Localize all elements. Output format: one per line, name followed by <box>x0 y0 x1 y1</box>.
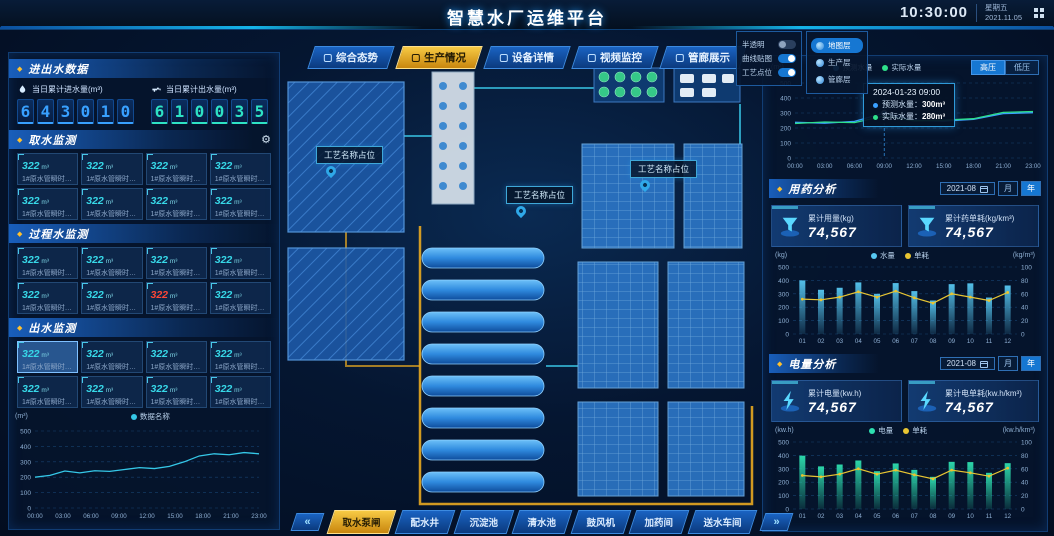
svg-text:0: 0 <box>787 156 791 163</box>
svg-text:12: 12 <box>1004 513 1011 520</box>
sedimentation-tanks <box>422 248 544 492</box>
svg-text:02: 02 <box>818 513 825 520</box>
filter-tanks <box>578 144 744 496</box>
diamond-icon: ◆ <box>17 230 23 238</box>
layer-toggle-row: 半透明 <box>742 39 796 50</box>
svg-text:80: 80 <box>1021 278 1029 285</box>
monitor-card[interactable]: 322 m³1#原水管瞬时… <box>210 188 271 220</box>
process-marker[interactable]: 工艺名称占位 <box>506 186 573 216</box>
daily-water-stats: 当日累计进水量(m³) 643010 当日累计出水量(m³) 610035 <box>9 78 279 128</box>
process-tab-2[interactable]: 配水井 <box>395 510 455 534</box>
pin-icon <box>324 164 338 178</box>
monitor-card[interactable]: 322 m³1#原水管瞬时… <box>146 188 207 220</box>
svg-text:05: 05 <box>874 338 881 345</box>
left-chart-unit: (m³) <box>15 413 28 420</box>
chart-tooltip: 2024-01-23 09:00 预测水量： 300m³ 实际水量： 280m³ <box>863 83 955 127</box>
left-panel-title: 进出水数据 <box>28 61 88 77</box>
svg-text:15:00: 15:00 <box>936 163 952 170</box>
layer-item[interactable]: 地图层 <box>811 38 863 53</box>
svg-text:0: 0 <box>27 506 31 513</box>
pressure-low-button[interactable]: 低压 <box>1005 60 1039 75</box>
chemical-analysis-section: ◆ 用药分析 2021-08 月 年 <box>769 179 1041 351</box>
pressure-high-button[interactable]: 高压 <box>971 60 1005 75</box>
chemical-title: 用药分析 <box>788 181 836 197</box>
counter-digit: 1 <box>171 99 188 124</box>
faucet-icon <box>151 84 162 95</box>
svg-text:07: 07 <box>911 338 918 345</box>
svg-text:08: 08 <box>930 338 937 345</box>
process-tab-5[interactable]: 鼓风机 <box>570 510 630 534</box>
svg-text:09: 09 <box>948 513 955 520</box>
svg-text:11: 11 <box>986 338 993 345</box>
chemical-legend: 水量单耗 <box>787 250 1013 261</box>
svg-text:400: 400 <box>778 453 789 460</box>
toggle-switch[interactable] <box>778 68 796 77</box>
dashboard-root: 智慧水厂运维平台 10:30:00 星期五 2021.11.05 综合态势生产情… <box>0 0 1054 536</box>
forecast-dot-icon <box>873 103 878 108</box>
right-panel: (m³) 预测水量实际水量 高压 低压 2024-01-23 09:00 预测水… <box>762 55 1048 532</box>
chemical-unit-value: 74,567 <box>945 224 1014 240</box>
svg-text:06:00: 06:00 <box>847 163 863 170</box>
svg-text:0: 0 <box>785 332 789 339</box>
counter-digit: 0 <box>191 99 208 124</box>
calendar-icon <box>980 185 988 193</box>
monitor-card[interactable]: 322 m³1#原水管瞬时… <box>210 341 271 373</box>
svg-text:09:00: 09:00 <box>111 513 127 520</box>
monitor-card[interactable]: 322 m³1#原水管瞬时… <box>81 376 142 408</box>
svg-text:09: 09 <box>948 338 955 345</box>
monitor-card[interactable]: 322 m³1#原水管瞬时… <box>17 341 78 373</box>
power-year-button[interactable]: 年 <box>1021 356 1041 371</box>
power-unit-card: 累计电单耗(kw.h/km³) 74,567 <box>908 380 1039 422</box>
funnel-water-icon <box>915 215 939 237</box>
process-tab-1[interactable]: 取水泵闸 <box>327 510 397 534</box>
power-bar-chart: 0100200300400500020406080100010203040506… <box>769 437 1041 526</box>
next-arrow-button[interactable]: » <box>759 513 793 531</box>
svg-text:21:00: 21:00 <box>996 163 1012 170</box>
date-block: 星期五 2021.11.05 <box>985 3 1022 23</box>
weekday-text: 星期五 <box>985 3 1022 13</box>
monitor-card[interactable]: 322 m³1#原水管瞬时… <box>210 376 271 408</box>
inflow-label: 当日累计进水量(m³) <box>32 84 103 95</box>
monitor-card[interactable]: 322 m³1#原水管瞬时… <box>146 282 207 314</box>
svg-text:100: 100 <box>780 141 791 148</box>
output-card-grid: 322 m³1#原水管瞬时…322 m³1#原水管瞬时…322 m³1#原水管瞬… <box>9 337 279 410</box>
outflow-stat: 当日累计出水量(m³) 610035 <box>151 84 271 124</box>
monitor-card[interactable]: 322 m³1#原水管瞬时… <box>81 247 142 279</box>
left-chart-legend: 数据名称 <box>28 411 273 422</box>
svg-text:04: 04 <box>855 338 862 345</box>
diamond-icon: ◆ <box>777 185 783 193</box>
map-layer-panel: 地图层生产层管廊层 <box>806 31 868 94</box>
power-unit-value: 74,567 <box>945 399 1022 415</box>
intake-card-grid: 322 m³1#原水管瞬时…322 m³1#原水管瞬时…322 m³1#原水管瞬… <box>9 149 279 222</box>
layer-globe-icon <box>816 76 824 84</box>
raw-water-tank-2 <box>288 248 404 360</box>
svg-text:300: 300 <box>20 459 31 466</box>
svg-text:00:00: 00:00 <box>27 513 43 520</box>
pin-icon <box>638 178 652 192</box>
nav-tab-icon <box>412 54 420 62</box>
svg-text:00:00: 00:00 <box>787 163 803 170</box>
svg-text:200: 200 <box>778 305 789 312</box>
power-total-card: 累计电量(kw.h) 74,567 <box>771 380 902 422</box>
svg-text:23:00: 23:00 <box>1025 163 1041 170</box>
nav-tab-label: 综合态势 <box>336 50 378 65</box>
svg-text:100: 100 <box>20 490 31 497</box>
counter-digit: 6 <box>17 99 34 124</box>
monitor-card[interactable]: 322 m³1#原水管瞬时… <box>81 341 142 373</box>
svg-text:500: 500 <box>20 429 31 436</box>
left-panel-title-banner: ◆ 进出水数据 <box>9 59 279 78</box>
nav-tab-3[interactable]: 设备详情 <box>483 46 570 69</box>
section-title-intake: 取水监测 <box>28 132 76 148</box>
legend-item: 水量 <box>871 250 895 261</box>
counter-digit: 0 <box>117 99 134 124</box>
diamond-icon: ◆ <box>777 360 783 368</box>
svg-text:18:00: 18:00 <box>966 163 982 170</box>
page-title: 智慧水厂运维平台 <box>447 4 607 29</box>
process-tab-3[interactable]: 沉淀池 <box>453 510 513 534</box>
process-tab-6[interactable]: 加药间 <box>629 510 689 534</box>
main-nav: 综合态势生产情况设备详情视频监控管廊展示 <box>307 46 747 69</box>
svg-text:500: 500 <box>778 440 789 447</box>
svg-text:03:00: 03:00 <box>817 163 833 170</box>
svg-text:15:00: 15:00 <box>167 513 183 520</box>
nav-tab-label: 设备详情 <box>512 50 554 65</box>
svg-text:09:00: 09:00 <box>877 163 893 170</box>
counter-digit: 3 <box>231 99 248 124</box>
svg-text:12: 12 <box>1004 338 1011 345</box>
diamond-icon: ◆ <box>17 65 23 73</box>
monitor-card[interactable]: 322 m³1#原水管瞬时… <box>81 282 142 314</box>
section-title-output: 出水监测 <box>28 320 76 336</box>
nav-tab-icon <box>324 54 332 62</box>
svg-text:02: 02 <box>818 338 825 345</box>
counter-digit: 0 <box>211 99 228 124</box>
svg-text:10: 10 <box>967 513 974 520</box>
monitor-card[interactable]: 322 m³1#原水管瞬时… <box>210 282 271 314</box>
svg-text:60: 60 <box>1021 291 1029 298</box>
divider <box>976 4 977 22</box>
svg-text:300: 300 <box>780 111 791 118</box>
section-title-process: 过程水监测 <box>28 226 88 242</box>
legend-item: 单耗 <box>905 250 929 261</box>
map-toggle-panel: 半透明曲线贴图工艺点位 <box>736 31 802 86</box>
chemical-total-card: 累计用量(kg) 74,567 <box>771 205 902 247</box>
svg-text:100: 100 <box>778 493 789 500</box>
nav-tab-2[interactable]: 生产情况 <box>395 46 482 69</box>
svg-text:60: 60 <box>1021 466 1029 473</box>
svg-text:400: 400 <box>778 278 789 285</box>
svg-text:100: 100 <box>778 318 789 325</box>
plant-map[interactable]: 工艺名称占位工艺名称占位工艺名称占位 <box>282 66 765 514</box>
toggle-label: 曲线贴图 <box>742 53 772 64</box>
layer-item[interactable]: 管廊层 <box>811 72 863 87</box>
monitor-card[interactable]: 322 m³1#原水管瞬时… <box>146 341 207 373</box>
svg-text:11: 11 <box>986 513 993 520</box>
toggle-label: 工艺点位 <box>742 67 772 78</box>
monitor-card[interactable]: 322 m³1#原水管瞬时… <box>17 376 78 408</box>
diamond-icon: ◆ <box>17 324 23 332</box>
svg-text:100: 100 <box>1021 440 1032 447</box>
nav-tab-4[interactable]: 视频监控 <box>571 46 658 69</box>
time-text: 10:30:00 <box>900 4 968 21</box>
nav-tab-5[interactable]: 管廊展示 <box>659 46 746 69</box>
monitor-card[interactable]: 322 m³1#原水管瞬时… <box>146 247 207 279</box>
svg-text:500: 500 <box>778 265 789 272</box>
svg-text:01: 01 <box>799 338 806 345</box>
monitor-card[interactable]: 322 m³1#原水管瞬时… <box>17 153 78 185</box>
power-title: 电量分析 <box>788 356 836 372</box>
process-marker[interactable]: 工艺名称占位 <box>630 160 697 190</box>
nav-tab-icon <box>676 54 684 62</box>
section-banner-process: ◆ 过程水监测 <box>9 224 279 243</box>
toggle-switch[interactable] <box>778 54 796 63</box>
monitor-card[interactable]: 322 m³1#原水管瞬时… <box>17 188 78 220</box>
svg-text:0: 0 <box>1021 507 1025 514</box>
svg-text:20: 20 <box>1021 493 1029 500</box>
counter-digit: 6 <box>151 99 168 124</box>
clock-block: 10:30:00 星期五 2021.11.05 <box>900 3 1044 23</box>
svg-text:01: 01 <box>799 513 806 520</box>
process-tab-list: 取水泵闸配水井沉淀池清水池鼓风机加药间送水车间 <box>328 510 757 534</box>
inflow-counter: 643010 <box>17 99 137 124</box>
tooltip-title: 2024-01-23 09:00 <box>873 87 945 97</box>
pump-house <box>432 72 474 204</box>
svg-text:03: 03 <box>836 513 843 520</box>
svg-text:10: 10 <box>967 338 974 345</box>
chemical-bar-chart: 0100200300400500020406080100010203040506… <box>769 262 1041 351</box>
monitor-card[interactable]: 322 m³1#原水管瞬时… <box>17 282 78 314</box>
svg-text:12:00: 12:00 <box>139 513 155 520</box>
nav-tab-label: 管廊展示 <box>688 50 730 65</box>
monitor-card[interactable]: 322 m³1#原水管瞬时… <box>146 376 207 408</box>
lightning-icon <box>778 390 802 412</box>
svg-text:23:00: 23:00 <box>251 513 267 520</box>
power-date-picker[interactable]: 2021-08 <box>940 357 995 370</box>
svg-text:80: 80 <box>1021 453 1029 460</box>
settings-gear-icon[interactable]: ⚙ <box>261 133 271 146</box>
layer-globe-icon <box>816 42 824 50</box>
svg-text:03:00: 03:00 <box>55 513 71 520</box>
counter-digit: 1 <box>97 99 114 124</box>
section-banner-intake: ◆ 取水监测 <box>9 130 253 149</box>
inflow-stat: 当日累计进水量(m³) 643010 <box>17 84 137 124</box>
svg-text:200: 200 <box>20 475 31 482</box>
power-legend: 电量单耗 <box>794 425 1003 436</box>
layer-item[interactable]: 生产层 <box>811 55 863 70</box>
monitor-card[interactable]: 322 m³1#原水管瞬时… <box>81 153 142 185</box>
svg-text:06: 06 <box>892 338 899 345</box>
svg-text:05: 05 <box>874 513 881 520</box>
svg-text:0: 0 <box>1021 332 1025 339</box>
svg-text:40: 40 <box>1021 305 1029 312</box>
nav-tab-icon <box>500 54 508 62</box>
svg-text:12:00: 12:00 <box>906 163 922 170</box>
svg-text:03: 03 <box>836 338 843 345</box>
bottom-tab-bar: « 取水泵闸配水井沉淀池清水池鼓风机加药间送水车间 » <box>293 510 790 534</box>
actual-dot-icon <box>873 115 878 120</box>
nav-tab-label: 视频监控 <box>600 50 642 65</box>
section-banner-output: ◆ 出水监测 <box>9 318 279 337</box>
nav-tab-1[interactable]: 综合态势 <box>307 46 394 69</box>
svg-text:08: 08 <box>930 513 937 520</box>
prev-arrow-button[interactable]: « <box>291 513 325 531</box>
toggle-label: 半透明 <box>742 39 765 50</box>
process-marker[interactable]: 工艺名称占位 <box>316 146 383 176</box>
layer-toggle-row: 工艺点位 <box>742 67 796 78</box>
chemical-total-value: 74,567 <box>808 224 857 240</box>
water-meter-icon <box>17 84 28 95</box>
svg-text:07: 07 <box>911 513 918 520</box>
svg-text:04: 04 <box>855 513 862 520</box>
monitor-card[interactable]: 322 m³1#原水管瞬时… <box>210 247 271 279</box>
power-analysis-section: ◆ 电量分析 2021-08 月 年 <box>769 354 1041 526</box>
chemical-unit-card: 累计药单耗(kg/km³) 74,567 <box>908 205 1039 247</box>
process-card-grid: 322 m³1#原水管瞬时…322 m³1#原水管瞬时…322 m³1#原水管瞬… <box>9 243 279 316</box>
pin-icon <box>514 204 528 218</box>
legend-item: 单耗 <box>903 425 927 436</box>
top-header: 智慧水厂运维平台 10:30:00 星期五 2021.11.05 <box>0 0 1054 30</box>
counter-digit: 3 <box>57 99 74 124</box>
svg-text:21:00: 21:00 <box>223 513 239 520</box>
process-tab-7[interactable]: 送水车间 <box>687 510 757 534</box>
calendar-icon <box>980 360 988 368</box>
toggle-switch[interactable] <box>778 40 796 49</box>
svg-text:06:00: 06:00 <box>83 513 99 520</box>
svg-text:06: 06 <box>892 513 899 520</box>
monitor-card[interactable]: 322 m³1#原水管瞬时… <box>17 247 78 279</box>
chemical-year-button[interactable]: 年 <box>1021 181 1041 196</box>
nav-tab-label: 生产情况 <box>424 50 466 65</box>
legend-item: 电量 <box>869 425 893 436</box>
svg-text:40: 40 <box>1021 480 1029 487</box>
power-banner: ◆ 电量分析 <box>769 354 879 373</box>
power-month-button[interactable]: 月 <box>998 356 1018 371</box>
outflow-counter: 610035 <box>151 99 271 124</box>
layer-toggle-row: 曲线贴图 <box>742 53 796 64</box>
svg-text:20: 20 <box>1021 318 1029 325</box>
legend-item: 数据名称 <box>131 411 170 422</box>
daily-flow-line-chart: 010020030040050000:0003:0006:0009:0012:0… <box>9 423 279 526</box>
lightning-icon <box>915 390 939 412</box>
funnel-water-icon <box>778 215 802 237</box>
process-tab-4[interactable]: 清水池 <box>512 510 572 534</box>
power-total-value: 74,567 <box>808 399 861 415</box>
left-panel: ◆ 进出水数据 当日累计进水量(m³) 643010 当日累计出水量(m³) <box>8 52 280 530</box>
monitor-card[interactable]: 322 m³1#原水管瞬时… <box>146 153 207 185</box>
chemical-date-picker[interactable]: 2021-08 <box>940 182 995 195</box>
outflow-label: 当日累计出水量(m³) <box>166 84 237 95</box>
chemical-month-button[interactable]: 月 <box>998 181 1018 196</box>
svg-text:18:00: 18:00 <box>195 513 211 520</box>
diamond-icon: ◆ <box>17 136 23 144</box>
svg-text:200: 200 <box>778 480 789 487</box>
nav-tab-icon <box>588 54 596 62</box>
monitor-card[interactable]: 322 m³1#原水管瞬时… <box>81 188 142 220</box>
counter-digit: 4 <box>37 99 54 124</box>
date-text: 2021.11.05 <box>985 13 1022 23</box>
svg-text:200: 200 <box>780 126 791 133</box>
plant-schematic <box>282 66 765 514</box>
counter-digit: 0 <box>77 99 94 124</box>
fullscreen-icon[interactable] <box>1034 8 1044 18</box>
svg-text:300: 300 <box>778 291 789 298</box>
svg-text:400: 400 <box>780 96 791 103</box>
svg-text:100: 100 <box>1021 265 1032 272</box>
counter-digit: 5 <box>251 99 268 124</box>
layer-globe-icon <box>816 59 824 67</box>
monitor-card[interactable]: 322 m³1#原水管瞬时… <box>210 153 271 185</box>
svg-text:300: 300 <box>778 466 789 473</box>
legend-item: 实际水量 <box>882 62 921 73</box>
svg-text:400: 400 <box>20 444 31 451</box>
chemical-banner: ◆ 用药分析 <box>769 179 879 198</box>
